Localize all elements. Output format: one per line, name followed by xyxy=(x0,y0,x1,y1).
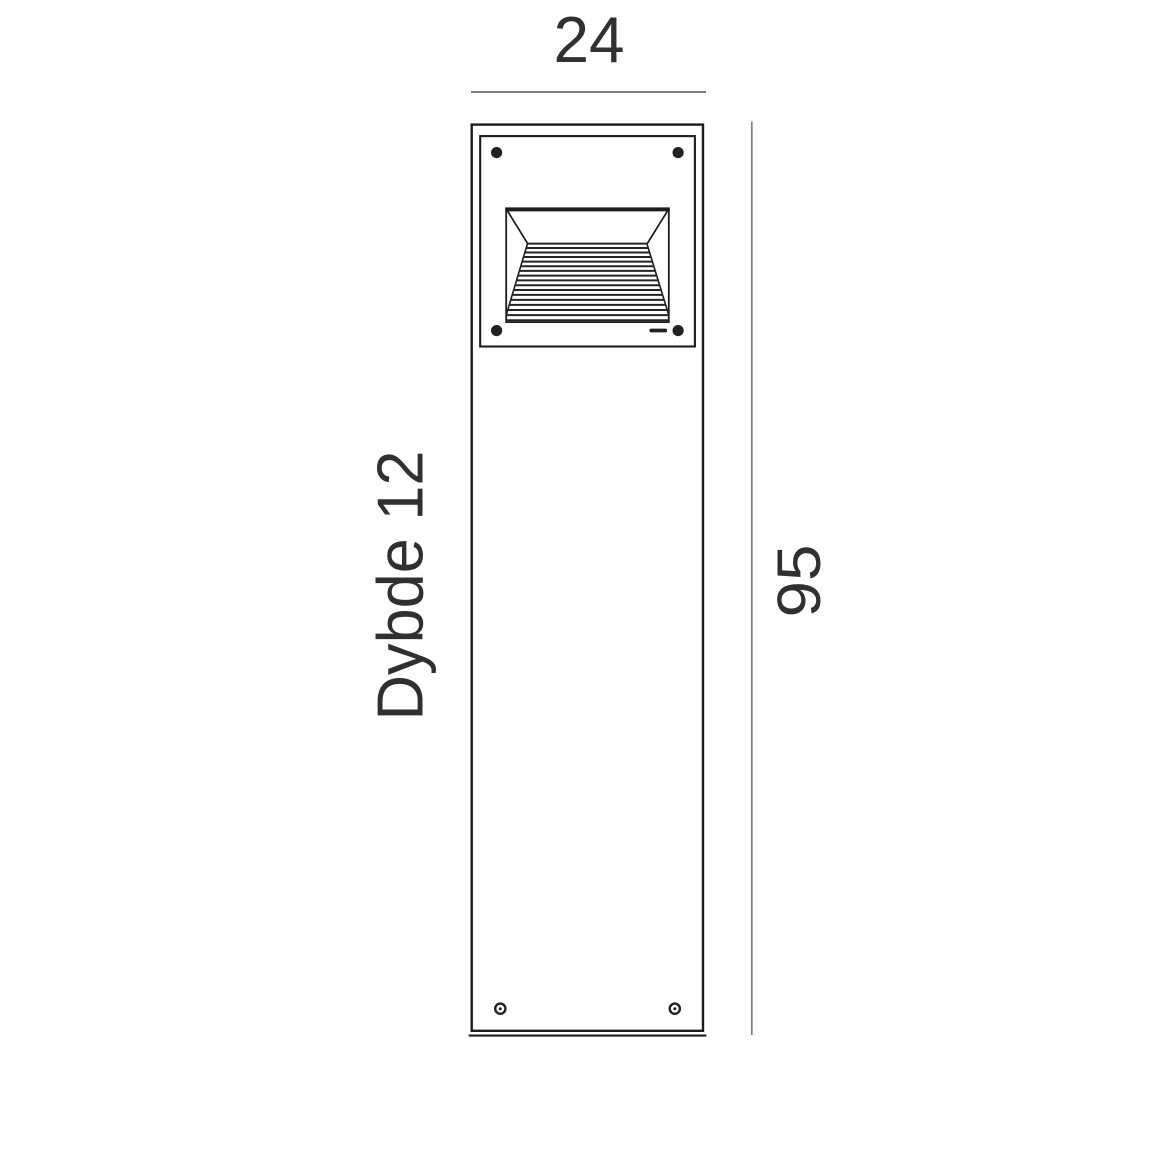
svg-text:24: 24 xyxy=(554,3,625,76)
svg-text:Dybde 12: Dybde 12 xyxy=(364,451,437,721)
svg-text:95: 95 xyxy=(765,545,833,618)
